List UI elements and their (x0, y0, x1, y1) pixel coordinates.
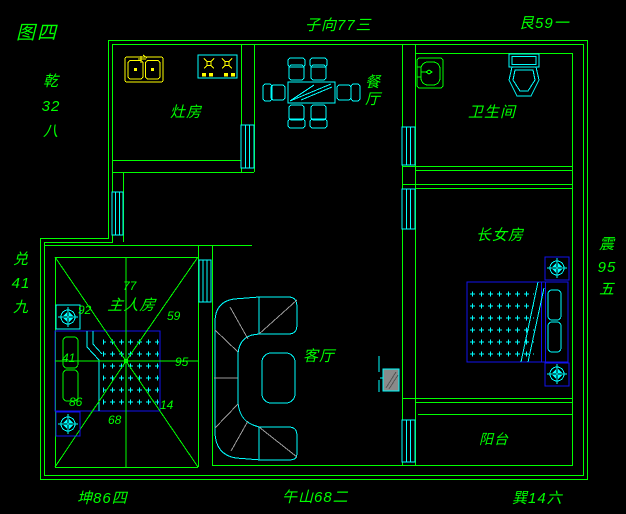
floor-plan-drawing (0, 0, 626, 514)
compass-label-xun: 巽14六 (512, 487, 563, 508)
coffee-table (262, 353, 295, 403)
room-label-kitchen: 灶房 (170, 101, 202, 122)
compass-label-zi-direction: 子向77三 (305, 14, 372, 35)
compass-label-kun: 坤86四 (77, 487, 128, 508)
target-symbol-daughter-bottom (545, 363, 569, 386)
target-symbol-master-bottom (56, 412, 80, 436)
star-number-92: 92 (78, 303, 91, 317)
compass-label-qian: 乾 32 八 (38, 70, 64, 144)
star-number-86: 86 (69, 395, 82, 409)
star-number-59: 59 (167, 309, 180, 323)
window-left-hall (112, 192, 123, 235)
star-number-77: 77 (123, 279, 136, 293)
figure-title: 图四 (16, 18, 58, 45)
bathroom-sink (417, 58, 443, 88)
compass-label-dui: 兑 41 九 (8, 248, 34, 320)
dining-table-set (263, 58, 360, 128)
window-bathroom-door (402, 127, 415, 165)
living-sofa (214, 297, 297, 460)
target-symbol-master-top (56, 305, 80, 329)
compass-label-zhen: 震 95 五 (594, 234, 620, 302)
room-label-living-room: 客厅 (303, 345, 335, 366)
window-daughter-door (402, 189, 415, 229)
window-balcony-door (402, 420, 415, 462)
toilet (509, 54, 539, 96)
room-label-dining: 餐厅 (365, 74, 382, 109)
compass-label-gen: 艮59一 (519, 12, 570, 33)
room-label-master-bedroom: 主人房 (107, 294, 158, 315)
window-master-door (199, 260, 211, 302)
tv (379, 356, 399, 392)
compass-label-wu-mountain: 午山68二 (282, 486, 349, 507)
daughter-bed (467, 282, 568, 362)
room-label-eldest-daughter: 长女房 (476, 224, 524, 245)
window-kitchen-door (241, 125, 254, 168)
room-label-balcony: 阳台 (479, 429, 509, 449)
target-symbol-daughter-top (545, 257, 569, 280)
kitchen-sink (125, 55, 163, 82)
star-number-41: 41 (62, 351, 75, 365)
cad-floorplan-view: 图四 乾 32 八 子向77三 艮59一 兑 41 九 震 95 五 坤86四 … (0, 0, 626, 514)
star-number-68: 68 (108, 413, 121, 427)
star-number-95: 95 (175, 355, 188, 369)
star-number-14: 14 (160, 398, 173, 412)
room-label-bathroom: 卫生间 (468, 101, 516, 122)
gas-stove (198, 55, 237, 78)
